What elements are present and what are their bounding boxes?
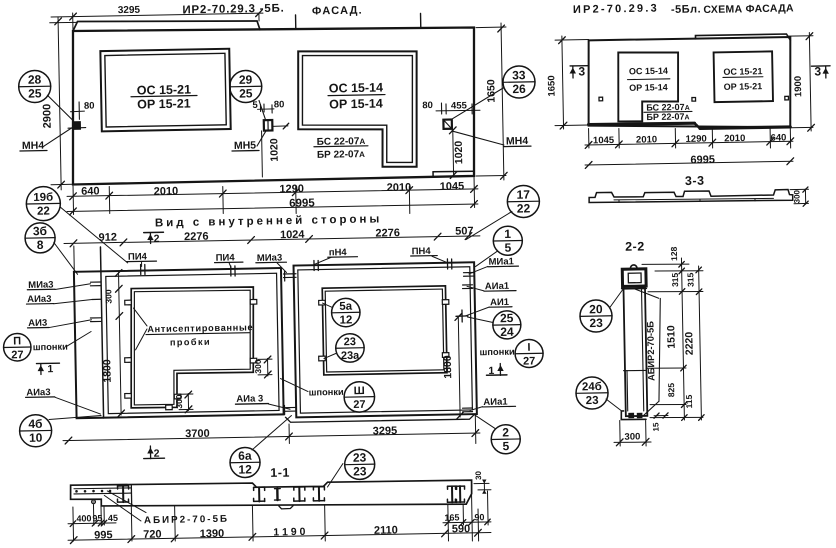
svg-text:2110: 2110 bbox=[374, 524, 398, 536]
svg-text:912: 912 bbox=[98, 232, 117, 244]
svg-text:1 1 9 0: 1 1 9 0 bbox=[273, 526, 305, 539]
svg-text:2: 2 bbox=[154, 448, 160, 460]
svg-text:640: 640 bbox=[770, 132, 786, 143]
svg-text:12: 12 bbox=[238, 462, 252, 476]
svg-text:590: 590 bbox=[452, 523, 471, 535]
svg-text:33: 33 bbox=[512, 68, 526, 82]
svg-text:3700: 3700 bbox=[185, 428, 210, 440]
svg-text:П: П bbox=[13, 335, 21, 347]
svg-text:ОР 15-21: ОР 15-21 bbox=[724, 81, 763, 92]
svg-text:2: 2 bbox=[502, 425, 509, 439]
svg-text:2276: 2276 bbox=[375, 227, 400, 239]
svg-text:2010: 2010 bbox=[154, 185, 179, 197]
svg-text:20: 20 bbox=[589, 302, 603, 316]
svg-text:300: 300 bbox=[174, 394, 184, 409]
svg-text:ИР2-70.29.3: ИР2-70.29.3 bbox=[573, 2, 659, 16]
svg-text:28: 28 bbox=[28, 73, 42, 87]
svg-text:26: 26 bbox=[512, 82, 526, 96]
svg-text:Ш: Ш bbox=[354, 385, 365, 397]
svg-text:315: 315 bbox=[685, 272, 695, 287]
svg-text:24: 24 bbox=[500, 325, 514, 339]
svg-text:2010: 2010 bbox=[724, 133, 745, 144]
svg-text:825: 825 bbox=[666, 383, 676, 398]
svg-text:ОР 15-14: ОР 15-14 bbox=[629, 82, 668, 93]
svg-text:720: 720 bbox=[143, 529, 162, 541]
svg-text:1800: 1800 bbox=[101, 359, 113, 383]
svg-text:1-1: 1-1 bbox=[270, 466, 290, 480]
svg-text:80: 80 bbox=[84, 101, 95, 112]
svg-text:1390: 1390 bbox=[200, 528, 225, 540]
svg-text:АБИР2-70-5Б: АБИР2-70-5Б bbox=[144, 514, 229, 527]
svg-text:3: 3 bbox=[814, 64, 821, 78]
svg-text:5: 5 bbox=[502, 439, 509, 453]
svg-text:995: 995 bbox=[94, 529, 113, 541]
svg-text:Вид с внутренней стороны: Вид с внутренней стороны bbox=[155, 213, 383, 229]
svg-text:8: 8 bbox=[37, 238, 44, 252]
svg-text:300: 300 bbox=[253, 359, 263, 374]
svg-text:шпонки: шпонки bbox=[480, 347, 515, 358]
svg-text:БР 22-07А: БР 22-07А bbox=[317, 149, 365, 161]
svg-text:165: 165 bbox=[444, 512, 459, 522]
svg-text:25: 25 bbox=[500, 311, 514, 325]
svg-text:2276: 2276 bbox=[184, 231, 209, 243]
svg-text:2: 2 bbox=[154, 233, 160, 245]
svg-text:1650: 1650 bbox=[546, 75, 557, 96]
svg-text:455: 455 bbox=[451, 100, 468, 111]
svg-text:115: 115 bbox=[684, 394, 694, 408]
svg-text:30: 30 bbox=[474, 470, 483, 480]
svg-text:10: 10 bbox=[29, 431, 43, 445]
svg-text:1900: 1900 bbox=[793, 76, 804, 97]
svg-text:45: 45 bbox=[108, 513, 118, 523]
svg-text:6995: 6995 bbox=[289, 197, 315, 209]
svg-text:1020: 1020 bbox=[268, 138, 280, 162]
svg-text:1800: 1800 bbox=[442, 355, 454, 379]
svg-text:-5Бл.: -5Бл. bbox=[671, 3, 701, 16]
svg-text:1: 1 bbox=[47, 363, 53, 375]
svg-text:300: 300 bbox=[624, 431, 640, 442]
svg-text:27: 27 bbox=[353, 399, 365, 411]
svg-text:23: 23 bbox=[353, 450, 367, 464]
svg-text:25: 25 bbox=[28, 86, 42, 100]
svg-text:315: 315 bbox=[670, 272, 680, 287]
svg-text:1290: 1290 bbox=[686, 134, 707, 145]
svg-text:1045: 1045 bbox=[440, 181, 465, 193]
svg-text:1510: 1510 bbox=[665, 325, 677, 349]
svg-text:90: 90 bbox=[474, 512, 484, 522]
svg-text:2-2: 2-2 bbox=[625, 239, 645, 253]
svg-text:3295: 3295 bbox=[373, 425, 398, 437]
svg-text:23: 23 bbox=[344, 336, 356, 348]
svg-text:1045: 1045 bbox=[593, 135, 615, 146]
svg-text:5: 5 bbox=[504, 241, 511, 255]
svg-text:3295: 3295 bbox=[118, 5, 141, 16]
svg-text:ОР 15-14: ОР 15-14 bbox=[329, 97, 383, 112]
svg-text:пробки: пробки bbox=[170, 337, 211, 348]
svg-text:22: 22 bbox=[37, 206, 50, 218]
svg-text:2220: 2220 bbox=[683, 332, 695, 356]
svg-text:шпонки: шпонки bbox=[33, 342, 68, 353]
svg-text:ОС 15-21: ОС 15-21 bbox=[723, 66, 762, 77]
svg-text:27: 27 bbox=[11, 349, 23, 361]
svg-text:23: 23 bbox=[589, 316, 603, 330]
svg-text:2900: 2900 bbox=[41, 104, 53, 129]
svg-text:3-3: 3-3 bbox=[685, 174, 705, 188]
svg-text:БР 22-07А: БР 22-07А bbox=[646, 111, 689, 122]
svg-text:300: 300 bbox=[103, 289, 113, 304]
svg-text:300: 300 bbox=[792, 189, 801, 203]
svg-text:29: 29 bbox=[239, 73, 253, 87]
svg-text:128: 128 bbox=[669, 246, 679, 261]
svg-text:5: 5 bbox=[252, 100, 258, 111]
svg-text:1: 1 bbox=[504, 227, 511, 241]
svg-text:2010: 2010 bbox=[387, 182, 412, 194]
svg-text:25: 25 bbox=[239, 86, 253, 100]
svg-text:507: 507 bbox=[455, 225, 474, 237]
svg-text:ФАСАД.: ФАСАД. bbox=[312, 5, 363, 18]
svg-text:шпонки: шпонки bbox=[309, 387, 344, 398]
svg-text:I: I bbox=[527, 342, 530, 354]
svg-text:6а: 6а bbox=[238, 449, 252, 463]
svg-text:5а: 5а bbox=[339, 301, 353, 313]
svg-text:15: 15 bbox=[651, 422, 660, 432]
svg-text:ОС 15-14: ОС 15-14 bbox=[329, 81, 383, 96]
svg-text:3: 3 bbox=[578, 64, 585, 78]
svg-text:24б: 24б bbox=[582, 381, 602, 393]
svg-text:27: 27 bbox=[523, 355, 535, 367]
svg-text:23: 23 bbox=[586, 395, 599, 407]
svg-text:19б: 19б bbox=[33, 192, 53, 204]
svg-text:1: 1 bbox=[488, 365, 494, 377]
svg-text:3б: 3б bbox=[33, 224, 47, 238]
svg-text:2010: 2010 bbox=[636, 134, 657, 145]
svg-text:12: 12 bbox=[339, 314, 352, 326]
svg-text:ОР 15-21: ОР 15-21 bbox=[137, 97, 191, 112]
svg-text:1650: 1650 bbox=[485, 79, 497, 103]
svg-text:640: 640 bbox=[81, 185, 100, 197]
svg-text:23: 23 bbox=[353, 464, 367, 478]
svg-text:АБИР2-70-5Б: АБИР2-70-5Б bbox=[645, 321, 656, 381]
svg-text:23а: 23а bbox=[341, 350, 360, 362]
svg-text:1024: 1024 bbox=[280, 229, 306, 241]
svg-text:6995: 6995 bbox=[690, 154, 715, 166]
svg-text:17: 17 bbox=[516, 188, 530, 202]
svg-text:80: 80 bbox=[274, 99, 285, 110]
svg-text:СХЕМА ФАСАДА: СХЕМА ФАСАДА bbox=[703, 2, 794, 16]
svg-text:1290: 1290 bbox=[279, 183, 304, 195]
svg-text:4б: 4б bbox=[28, 417, 42, 431]
svg-text:ОС 15-14: ОС 15-14 bbox=[629, 66, 668, 77]
svg-text:1020: 1020 bbox=[453, 141, 465, 165]
svg-text:400: 400 bbox=[76, 513, 91, 523]
svg-text:80: 80 bbox=[422, 100, 433, 111]
svg-text:22: 22 bbox=[517, 201, 531, 215]
